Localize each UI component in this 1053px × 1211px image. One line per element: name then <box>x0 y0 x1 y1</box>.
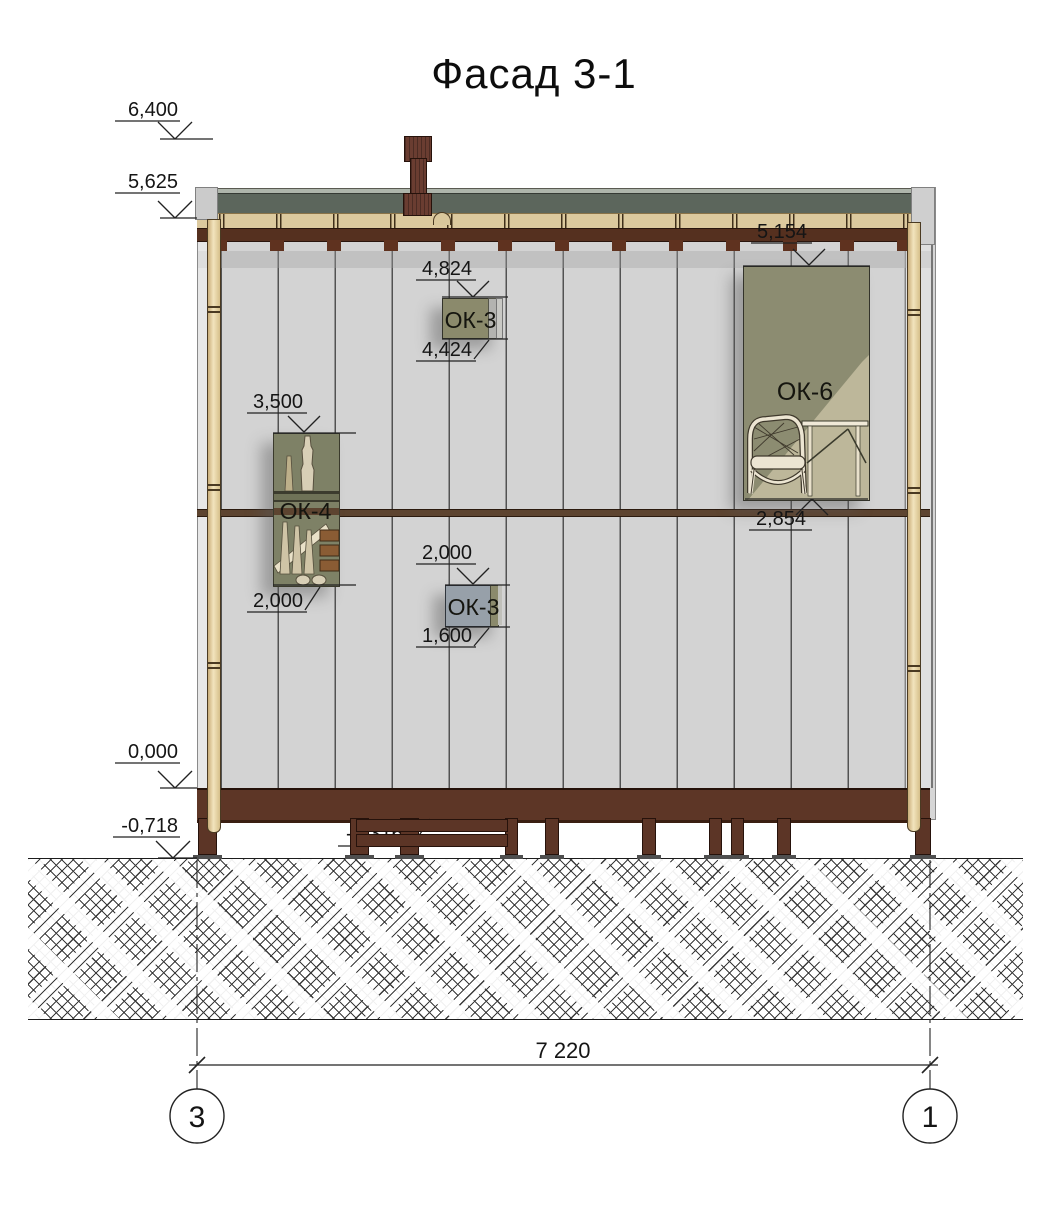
window-transom <box>274 491 339 494</box>
mark-ground: -0,718 <box>121 815 178 837</box>
window-frame-edge <box>496 298 503 339</box>
foundation-pile <box>709 818 722 855</box>
log-post-left <box>207 219 221 833</box>
mark-chimney-top: 6,400 <box>128 99 178 121</box>
foundation-pile <box>545 818 559 855</box>
stair-step <box>320 545 339 556</box>
chimney-stem <box>410 158 427 198</box>
window-ok4 <box>273 433 340 587</box>
baluster-knob <box>312 575 326 585</box>
mark-eaves: 5,625 <box>128 171 178 193</box>
facade-drawing: Фасад 3-1 -0,316 <box>0 0 1053 1211</box>
floor-band-through-window <box>274 508 339 515</box>
baluster-knob <box>296 575 310 585</box>
base-band <box>197 788 930 823</box>
stair-step <box>320 530 339 541</box>
table-leg <box>856 426 860 496</box>
log-end-notch <box>433 212 451 225</box>
roof-corner-block-left <box>195 187 218 220</box>
window-ok6 <box>743 266 870 501</box>
chimney-base <box>403 193 432 216</box>
window-frame-edge <box>498 585 502 625</box>
window-ok3-upper <box>442 298 503 339</box>
foundation-pile <box>642 818 656 855</box>
window-ok3-lower <box>445 585 503 627</box>
stair-newel-post <box>301 436 314 491</box>
mark-floor-zero: 0,000 <box>128 741 178 763</box>
table-top <box>802 421 868 426</box>
roof-slab <box>197 193 930 214</box>
ground-hatch <box>28 858 1023 1020</box>
stair-step <box>320 560 339 571</box>
window-pane <box>445 585 491 627</box>
porch-rail-lower <box>356 834 508 847</box>
porch-rail-upper <box>356 819 508 832</box>
log-post-right <box>907 222 921 832</box>
window-pane <box>442 298 489 339</box>
axis-bubble-left <box>170 1089 224 1143</box>
window-transom-fill <box>274 494 339 500</box>
drawing-title: Фасад 3-1 <box>334 50 734 98</box>
window-ok4-interior <box>274 434 339 586</box>
stair-baluster <box>280 522 290 574</box>
axis-label-left: 3 <box>189 1101 206 1134</box>
axis-bubble-right <box>903 1089 957 1143</box>
foundation-pile <box>777 818 791 855</box>
foundation-pile <box>731 818 744 855</box>
stair-spindle <box>285 456 293 491</box>
stair-baluster <box>292 526 302 574</box>
window-transom-line <box>274 500 339 502</box>
overall-span-dim: 7 220 <box>535 1038 590 1063</box>
axis-label-right: 1 <box>922 1101 939 1134</box>
rafter-tails <box>197 240 930 251</box>
window-ok6-interior <box>744 267 869 500</box>
